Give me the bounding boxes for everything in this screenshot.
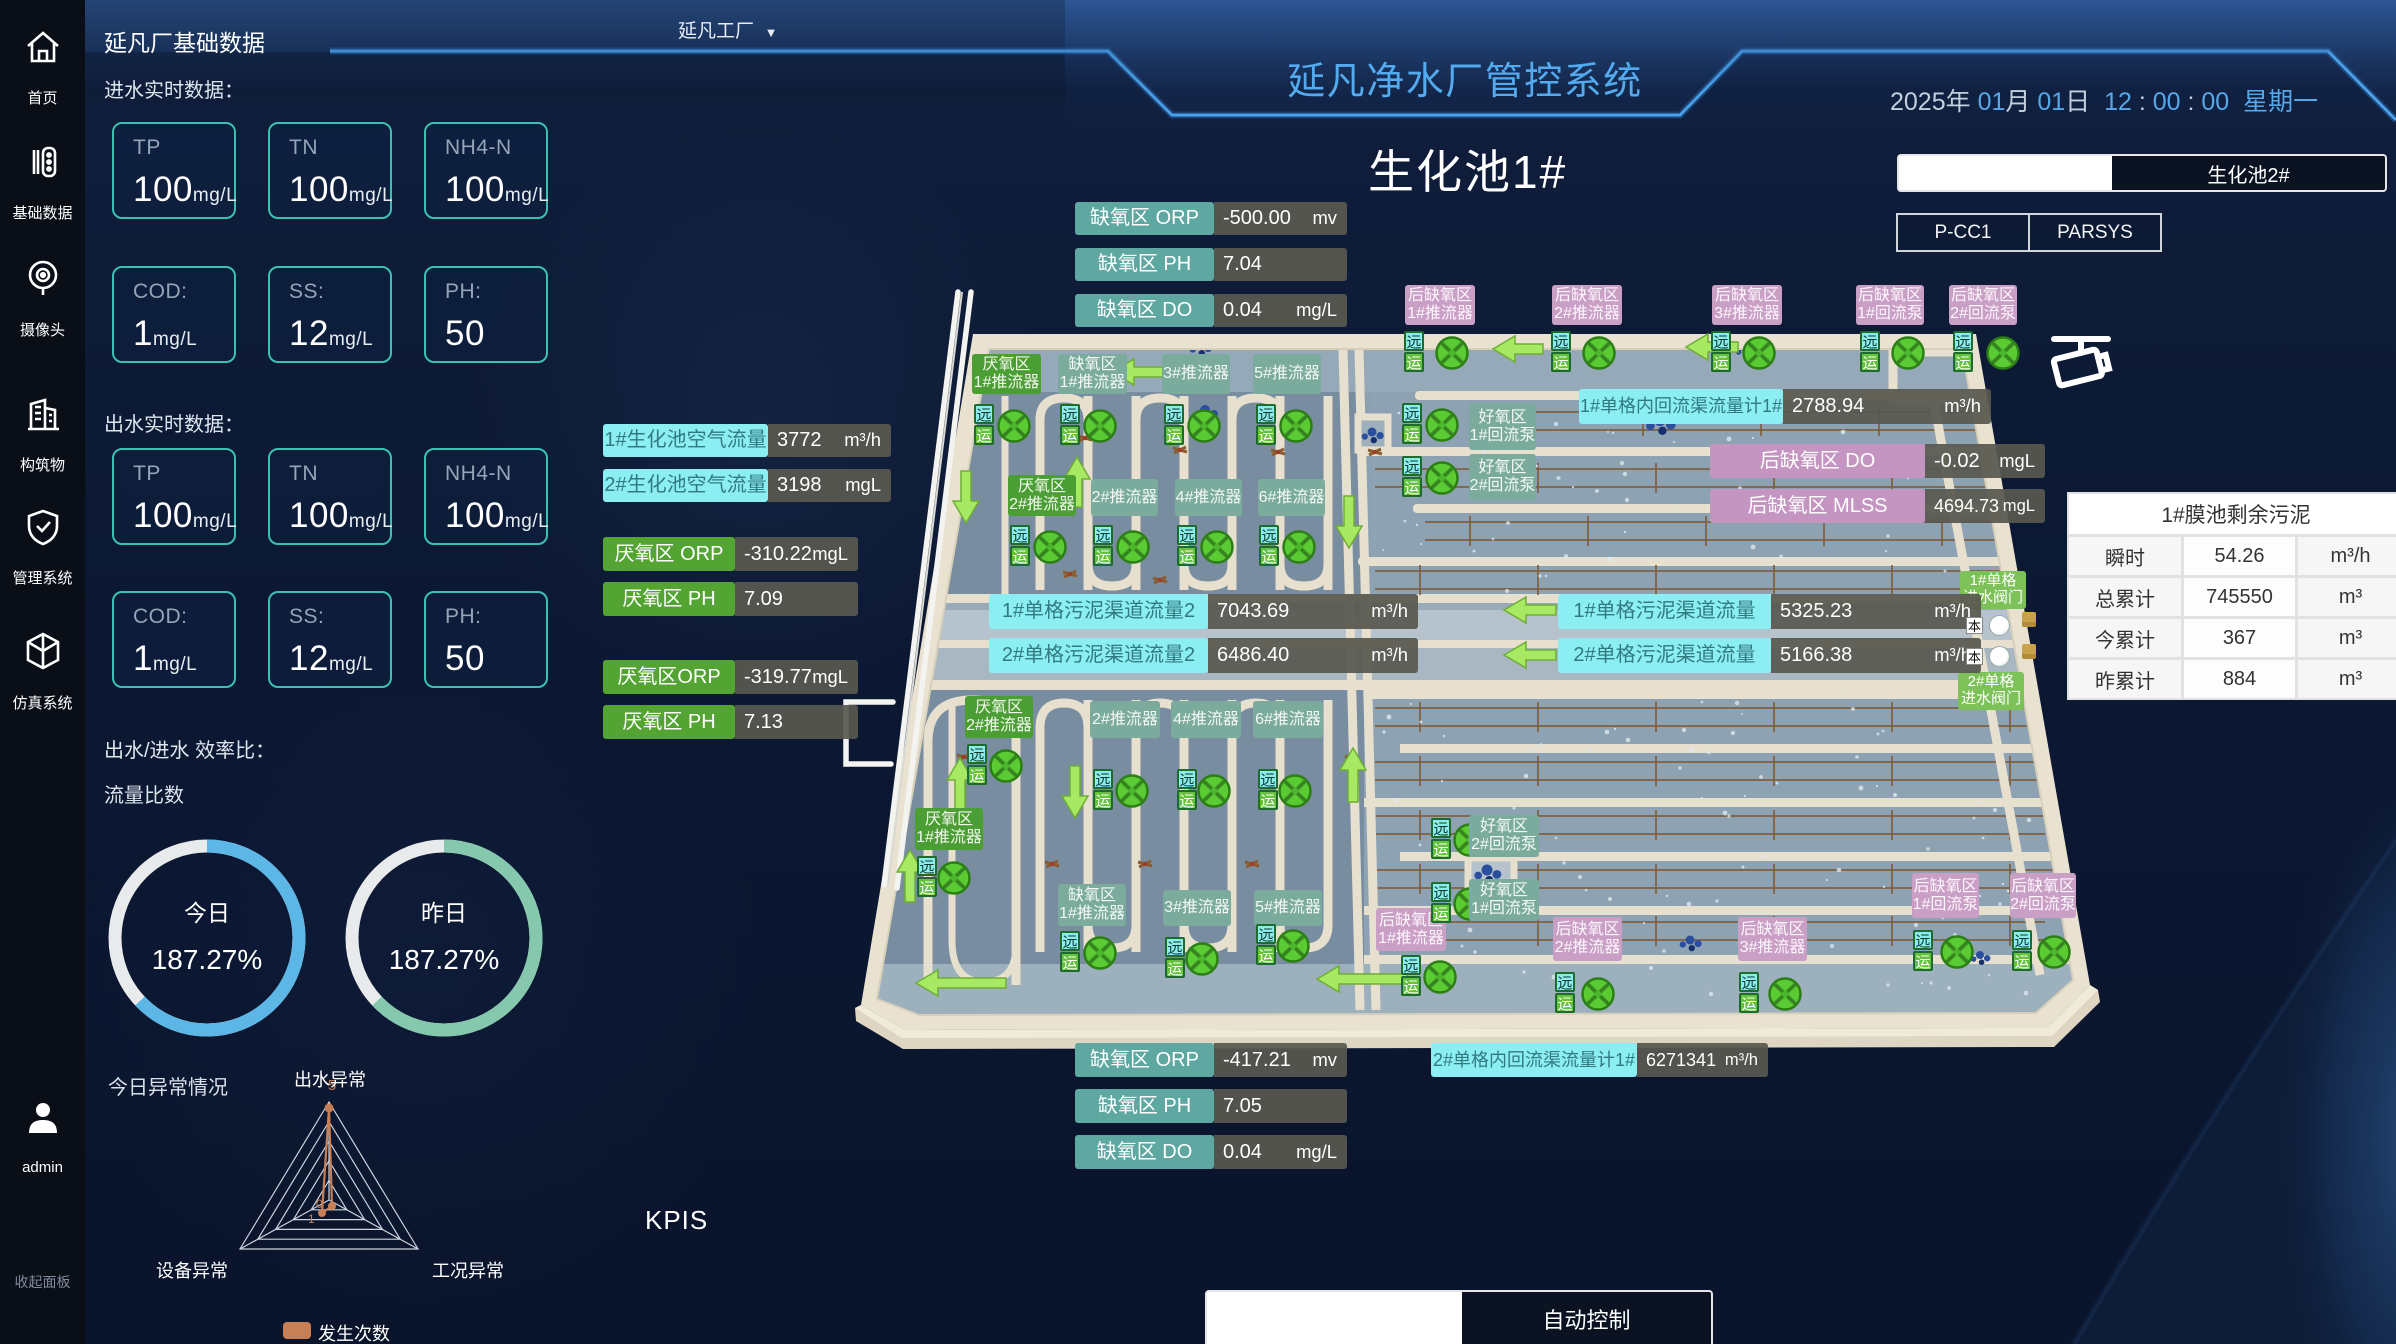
- svg-text:1: 1: [308, 1212, 315, 1226]
- svg-text:0: 0: [316, 1197, 323, 1211]
